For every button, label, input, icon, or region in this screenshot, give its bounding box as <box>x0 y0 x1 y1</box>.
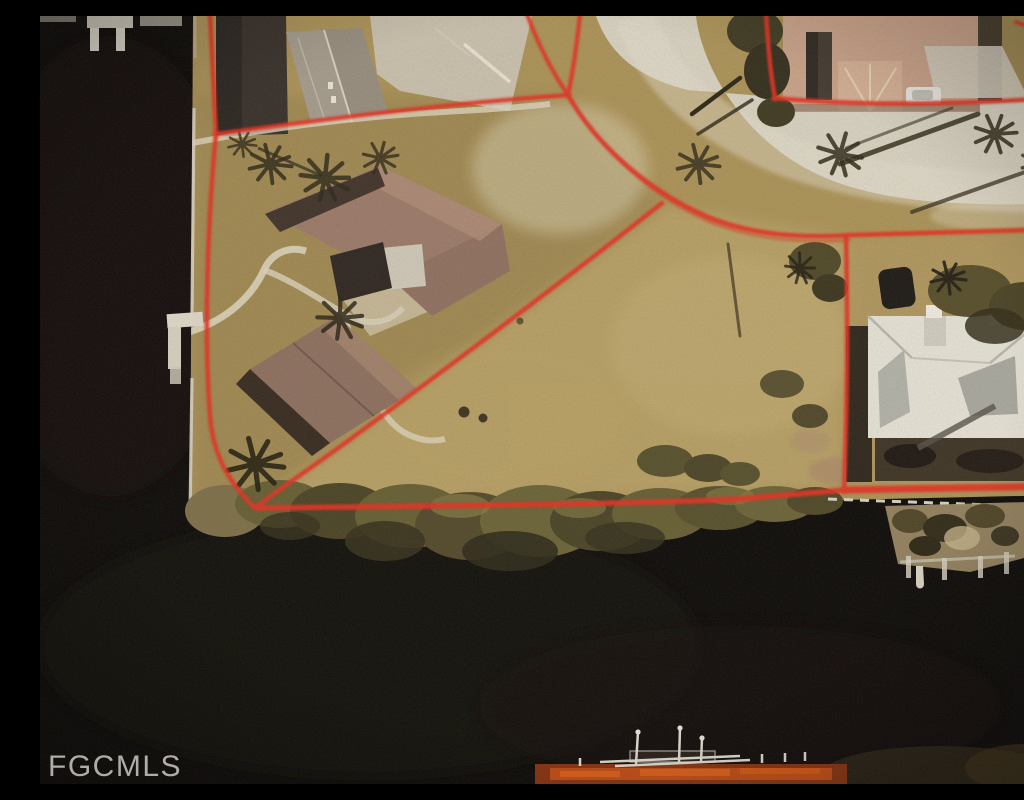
mls-watermark: FGCMLS <box>48 750 182 783</box>
photo-grain-overlay <box>40 16 1024 784</box>
aerial-photo: FGCMLS <box>40 16 1024 784</box>
aerial-photo-canvas: FGCMLS <box>40 16 1024 784</box>
